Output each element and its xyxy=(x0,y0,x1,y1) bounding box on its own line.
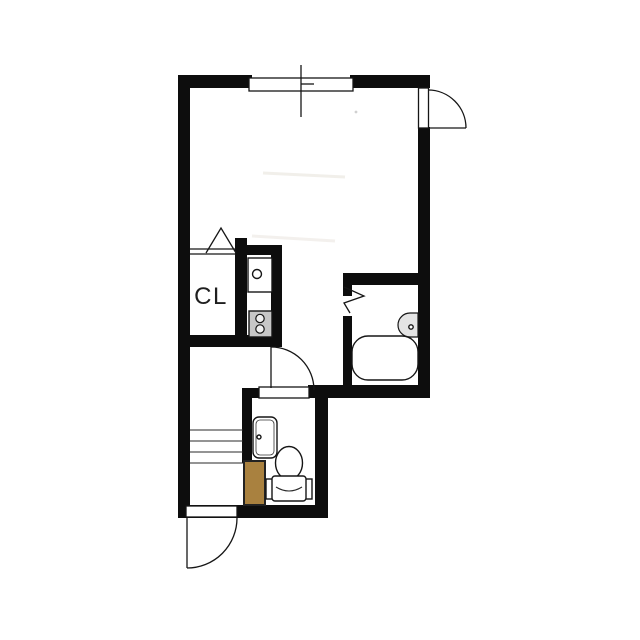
wall-top-right xyxy=(350,75,430,88)
wall-bathroom-left xyxy=(343,316,352,398)
toilet-bowl xyxy=(276,447,303,480)
wall-toilet-left xyxy=(242,395,252,463)
wall-bathroom-top xyxy=(343,273,430,285)
bathtub xyxy=(352,336,418,380)
brown-door-panel xyxy=(244,461,265,505)
stove-burner-icon xyxy=(256,325,264,333)
heater-knob-icon xyxy=(409,325,413,329)
water-heater-unit xyxy=(398,313,418,337)
sink-drain-icon xyxy=(253,270,262,279)
door-leaf-closed xyxy=(186,506,237,517)
door-leaf-closed xyxy=(419,88,429,128)
stove-burner-icon xyxy=(256,314,264,322)
toilet-tank xyxy=(272,476,306,501)
floor-plan: CL xyxy=(0,0,640,640)
wall-right xyxy=(418,127,430,398)
wall-left xyxy=(178,75,190,518)
plan-background xyxy=(0,0,640,640)
closet-label: CL xyxy=(194,283,228,310)
speck-mark xyxy=(355,111,358,114)
basin-drain-icon xyxy=(257,435,261,439)
floor-plan-drawing: CL xyxy=(0,0,640,640)
door-frame xyxy=(259,387,309,398)
wall-toilet-right xyxy=(315,385,328,518)
